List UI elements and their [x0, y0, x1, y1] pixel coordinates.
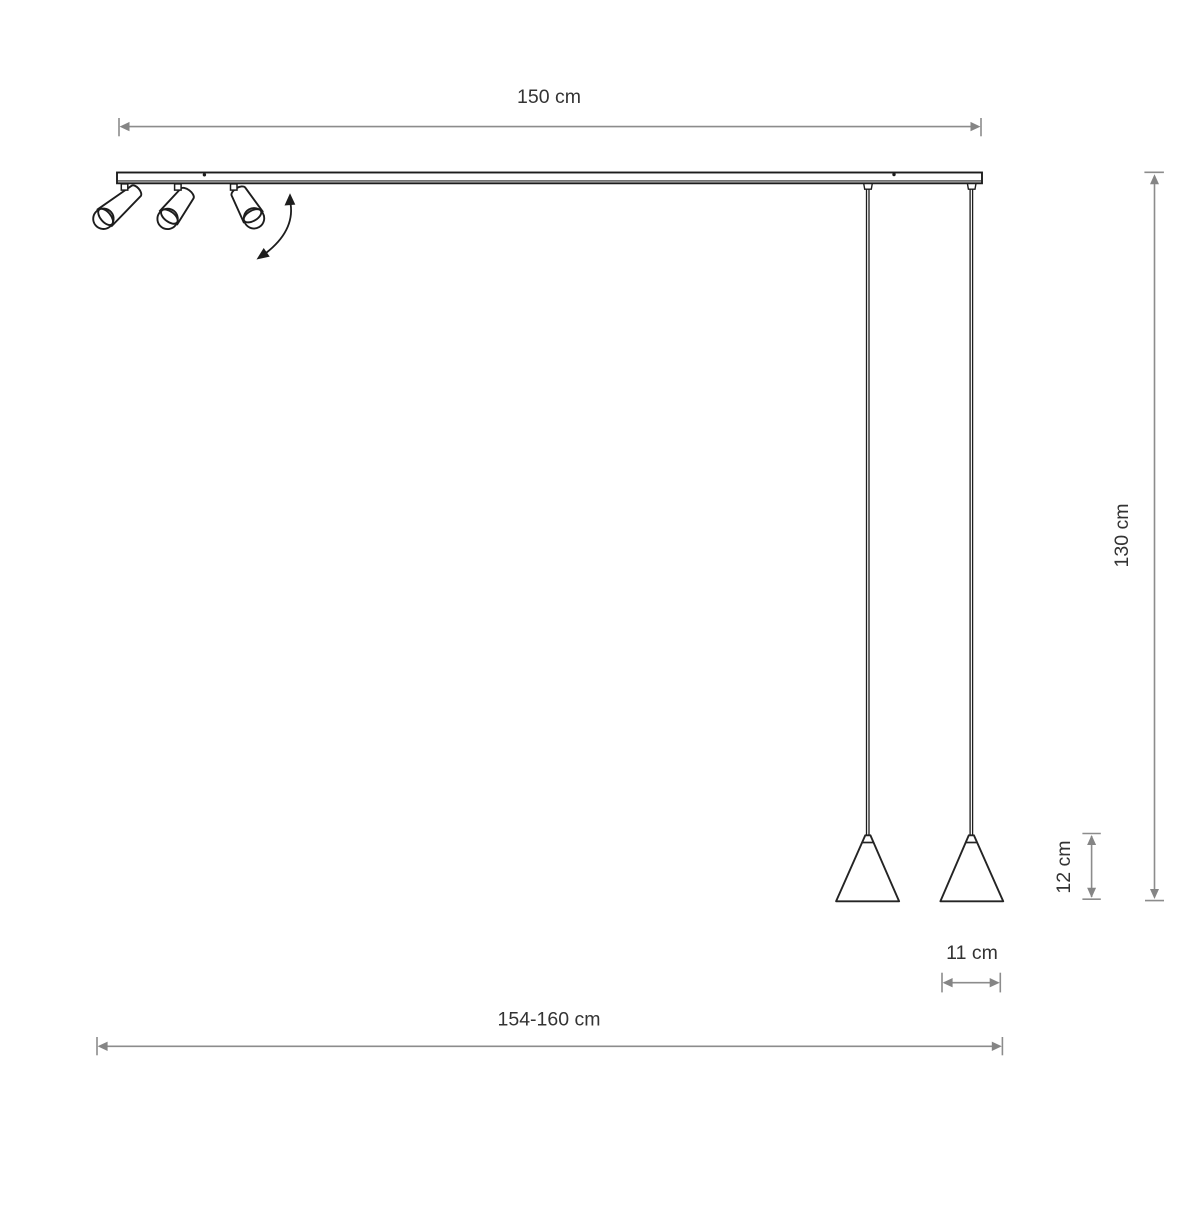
svg-text:130 cm: 130 cm	[1111, 504, 1133, 568]
svg-text:12 cm: 12 cm	[1053, 840, 1075, 893]
svg-text:154-160 cm: 154-160 cm	[498, 1009, 601, 1031]
svg-text:11 cm: 11 cm	[946, 942, 998, 964]
svg-text:150 cm: 150 cm	[517, 86, 581, 108]
